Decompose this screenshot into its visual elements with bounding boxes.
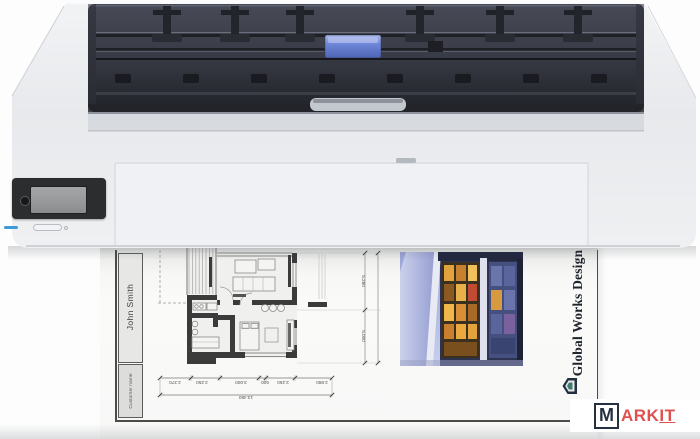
belt-clamp bbox=[428, 41, 443, 52]
roll-cover bbox=[88, 4, 644, 112]
dimension-label: 2.250 bbox=[273, 380, 293, 385]
touchscreen bbox=[30, 186, 87, 214]
dimension-label-vertical: 5.000 bbox=[361, 327, 366, 344]
watermark-monogram: M bbox=[594, 403, 619, 429]
dimension-label: 500 bbox=[255, 380, 275, 385]
cover-latch bbox=[396, 158, 416, 163]
status-led bbox=[4, 226, 18, 229]
dimension-label: 2.370 bbox=[165, 380, 185, 385]
dimension-total-label: 13.450 bbox=[236, 395, 256, 400]
company-logo-icon bbox=[562, 377, 579, 395]
dimension-label: 2.880 bbox=[312, 380, 332, 385]
dimension-label-vertical: 5.280 bbox=[361, 272, 366, 289]
product-photo-printer: John Smith Customer name bbox=[0, 0, 700, 439]
dimension-label: 3.000 bbox=[231, 380, 251, 385]
cover-handle bbox=[310, 98, 406, 111]
sheet-border-left bbox=[115, 250, 117, 421]
release-lever bbox=[33, 224, 62, 231]
balcony-hatch bbox=[319, 254, 325, 299]
customer-name-value: John Smith bbox=[124, 252, 136, 362]
tv-unit bbox=[233, 294, 246, 297]
dimension-label: 2.250 bbox=[192, 380, 212, 385]
panel-screw bbox=[64, 226, 68, 230]
sheet-border-bottom bbox=[115, 420, 598, 422]
wardrobe-unit bbox=[288, 323, 291, 347]
printer-body bbox=[0, 0, 700, 260]
company-name: Global Works Design bbox=[569, 243, 587, 383]
dimension-chain-vertical bbox=[297, 251, 381, 365]
watermark-ark: ARK bbox=[621, 406, 659, 425]
print-carriage bbox=[325, 35, 381, 58]
house-photo bbox=[400, 252, 523, 366]
front-deck bbox=[88, 114, 644, 130]
customer-name-label: Customer name bbox=[128, 369, 133, 412]
sheet-border-right bbox=[597, 250, 599, 402]
watermark-logo: M ARKIT bbox=[570, 399, 700, 432]
lit-windows bbox=[444, 265, 477, 356]
watermark-it: IT bbox=[659, 406, 675, 425]
power-button-icon bbox=[20, 196, 30, 206]
output-cover bbox=[116, 164, 588, 245]
platen-band bbox=[96, 60, 636, 104]
watermark-text: ARKIT bbox=[621, 406, 675, 426]
